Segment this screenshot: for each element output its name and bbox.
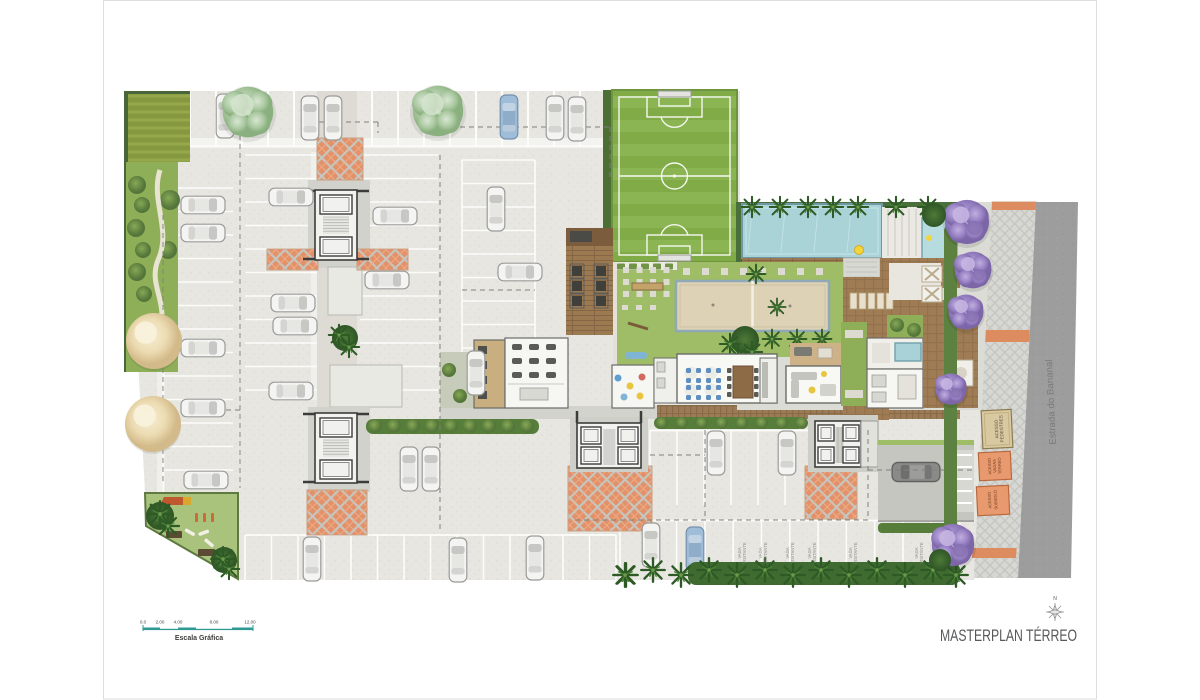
svg-text:SUBSOLO: SUBSOLO (993, 490, 999, 510)
svg-text:0.0: 0.0 (140, 620, 147, 625)
svg-text:4.00: 4.00 (174, 620, 183, 625)
svg-text:VISITANTE: VISITANTE (919, 542, 924, 564)
svg-text:VISITANTE: VISITANTE (853, 542, 858, 564)
svg-text:MASTERPLAN TÉRREO: MASTERPLAN TÉRREO (940, 626, 1077, 645)
svg-text:8.00: 8.00 (210, 620, 219, 625)
svg-text:VISITANTE: VISITANTE (763, 542, 768, 564)
svg-text:VISITANTE: VISITANTE (790, 542, 795, 564)
svg-text:TÉRREO: TÉRREO (997, 457, 1003, 474)
svg-text:12.00: 12.00 (244, 620, 256, 625)
svg-text:VISITANTE: VISITANTE (742, 542, 747, 564)
svg-text:Escala Gráfica: Escala Gráfica (175, 635, 223, 642)
svg-text:N: N (1053, 596, 1057, 602)
svg-text:ACESSO: ACESSO (987, 492, 993, 509)
svg-text:VISITANTE: VISITANTE (812, 542, 817, 564)
svg-text:2.00: 2.00 (156, 620, 165, 625)
